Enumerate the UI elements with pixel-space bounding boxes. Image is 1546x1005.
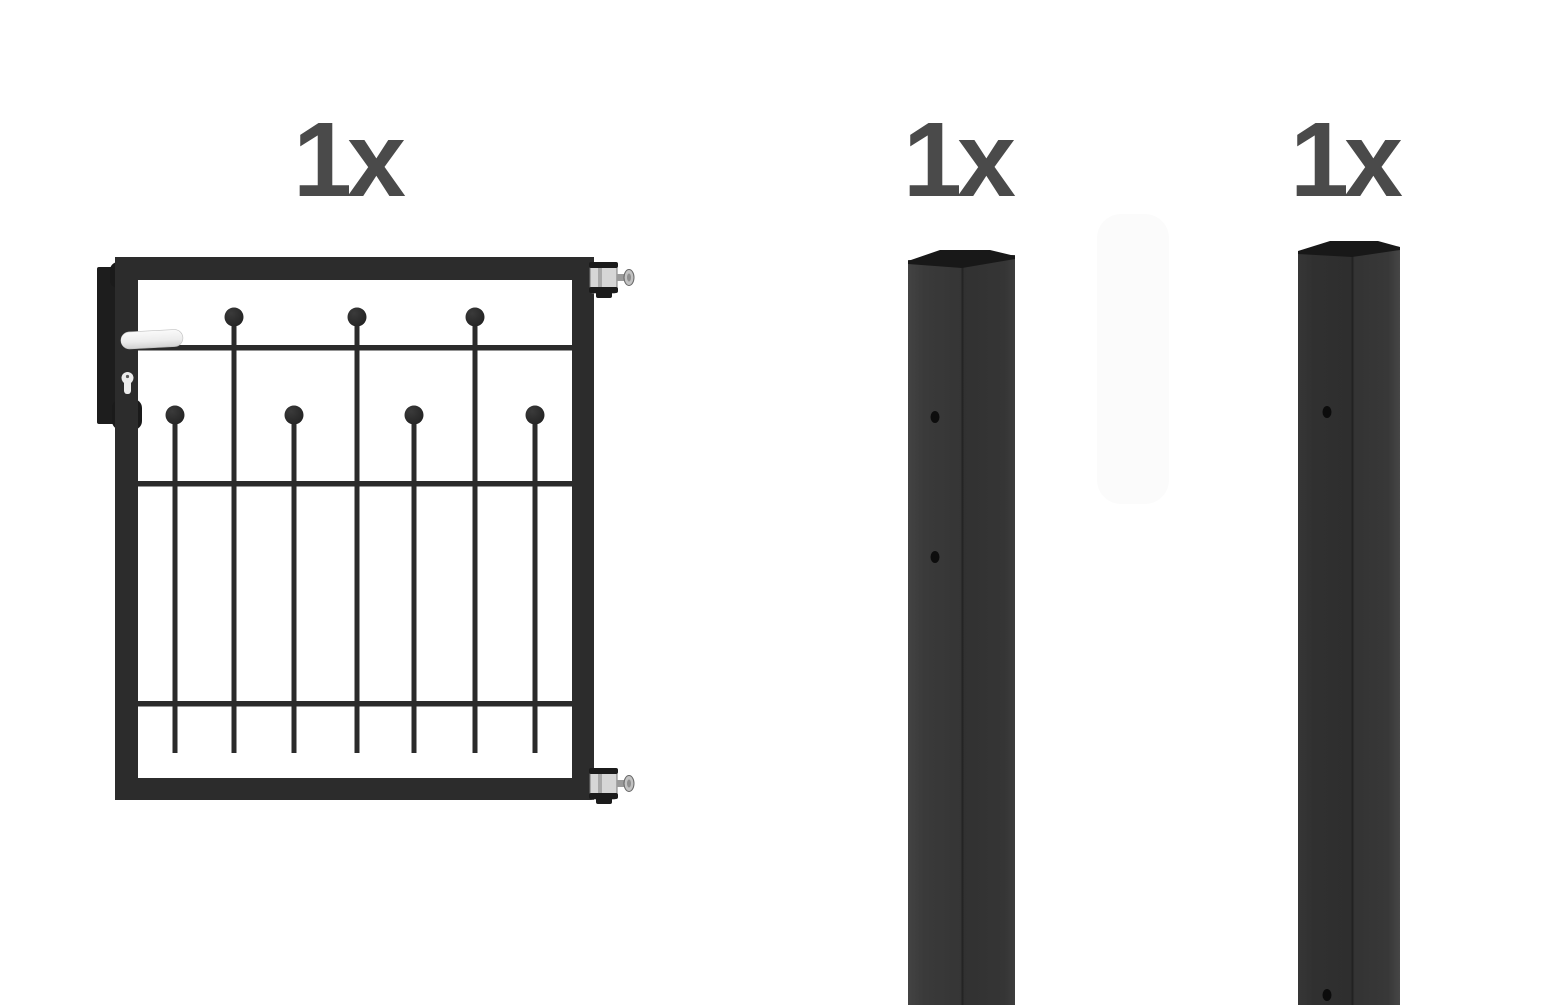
quantity-label-gate: 1x xyxy=(247,108,447,212)
ball-finial xyxy=(526,406,545,425)
fixing-hole xyxy=(1323,989,1332,1001)
gate-bars-tall xyxy=(225,308,485,754)
background-artifact xyxy=(1097,214,1169,504)
post-face-right xyxy=(962,255,1015,1005)
gate-handle xyxy=(121,329,184,349)
post-face-left xyxy=(1298,251,1352,1005)
hinge-top xyxy=(589,262,634,298)
post-face-left xyxy=(908,260,962,1005)
ball-finial xyxy=(166,406,185,425)
fixing-hole xyxy=(1323,406,1332,418)
ball-finial xyxy=(348,308,367,327)
ball-finial xyxy=(285,406,304,425)
post-a-illustration xyxy=(900,240,1025,1005)
ball-finial xyxy=(225,308,244,327)
quantity-label-post-a: 1x xyxy=(857,108,1057,212)
product-kit-image: 1x xyxy=(0,0,1546,1005)
hinge-bottom xyxy=(589,768,634,804)
ball-finial xyxy=(405,406,424,425)
quantity-label-post-b: 1x xyxy=(1244,108,1444,212)
ball-finial xyxy=(466,308,485,327)
fixing-hole xyxy=(931,411,940,423)
post-face-right xyxy=(1352,247,1400,1005)
post-b-illustration xyxy=(1290,235,1410,1005)
fixing-hole xyxy=(931,551,940,563)
gate-illustration xyxy=(88,245,638,810)
